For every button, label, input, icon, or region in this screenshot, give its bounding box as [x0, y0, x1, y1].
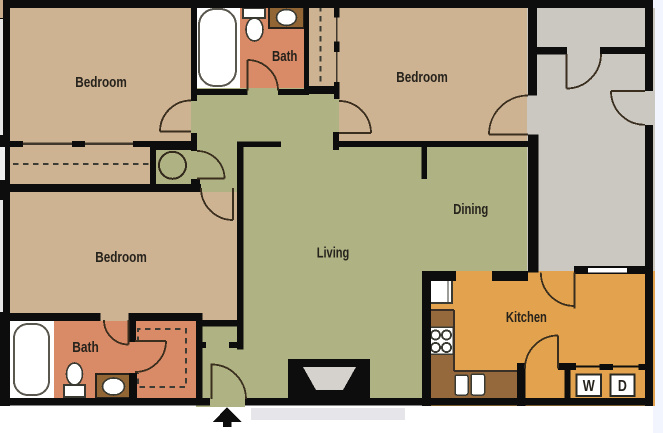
svg-text:Bath: Bath: [72, 339, 99, 356]
svg-text:Bedroom: Bedroom: [75, 74, 127, 91]
svg-text:Dining: Dining: [453, 201, 488, 218]
svg-text:Bedroom: Bedroom: [95, 249, 147, 266]
svg-text:Bath: Bath: [272, 48, 298, 65]
svg-text:W: W: [583, 378, 596, 395]
svg-text:D: D: [618, 378, 627, 395]
svg-text:Living: Living: [317, 245, 350, 262]
svg-text:Kitchen: Kitchen: [506, 309, 547, 326]
svg-text:Bedroom: Bedroom: [396, 69, 448, 86]
